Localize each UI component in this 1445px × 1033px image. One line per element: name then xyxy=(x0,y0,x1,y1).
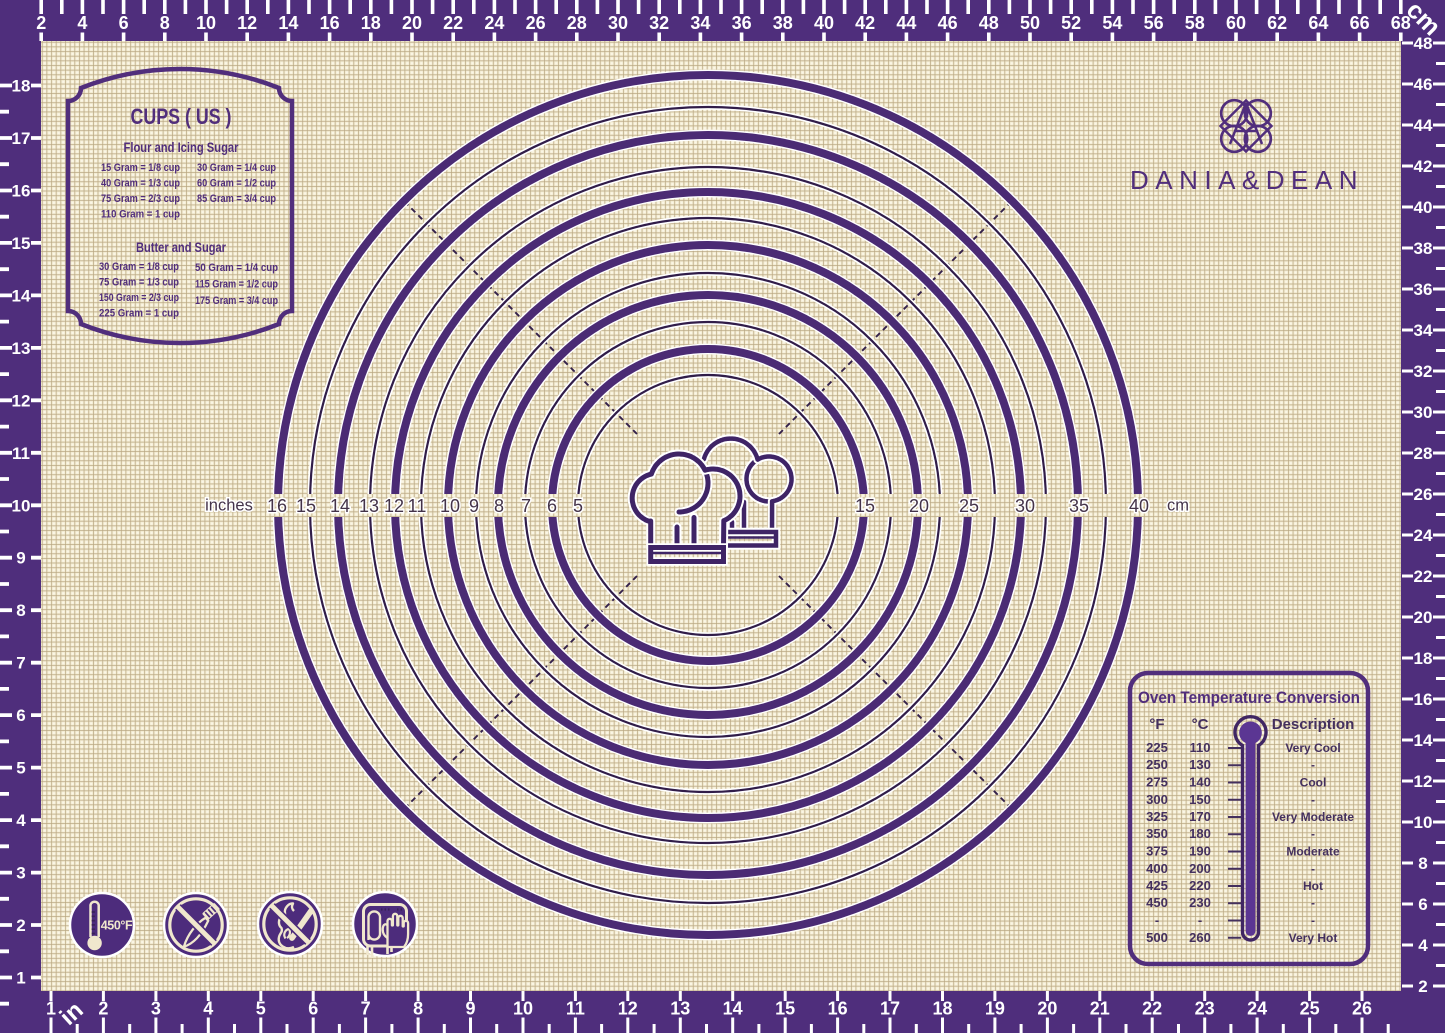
svg-text:12: 12 xyxy=(618,999,638,1019)
svg-text:13: 13 xyxy=(670,999,690,1019)
svg-text:12: 12 xyxy=(1414,772,1433,791)
svg-text:26: 26 xyxy=(1352,999,1372,1019)
svg-text:CUPS ( US ): CUPS ( US ) xyxy=(131,104,232,129)
svg-text:Hot: Hot xyxy=(1303,879,1323,893)
svg-text:64: 64 xyxy=(1308,13,1328,33)
svg-text:14: 14 xyxy=(12,286,31,305)
svg-text:4: 4 xyxy=(203,999,213,1019)
svg-text:8: 8 xyxy=(160,13,170,33)
svg-text:46: 46 xyxy=(938,13,958,33)
svg-text:15: 15 xyxy=(296,496,316,516)
svg-text:42: 42 xyxy=(855,13,875,33)
svg-text:110: 110 xyxy=(1190,740,1211,755)
svg-text:14: 14 xyxy=(330,496,350,516)
svg-text:200: 200 xyxy=(1189,861,1211,876)
svg-text:25: 25 xyxy=(959,496,979,516)
svg-text:2: 2 xyxy=(36,13,46,33)
svg-text:-: - xyxy=(1311,827,1315,841)
svg-text:260: 260 xyxy=(1189,930,1211,945)
svg-text:28: 28 xyxy=(567,13,587,33)
svg-text:275: 275 xyxy=(1146,775,1168,790)
svg-text:16: 16 xyxy=(12,182,31,201)
svg-text:20: 20 xyxy=(909,496,929,516)
svg-text:10: 10 xyxy=(12,496,31,515)
svg-text:8: 8 xyxy=(1418,854,1427,873)
svg-text:cm: cm xyxy=(1167,497,1189,515)
svg-text:Very Hot: Very Hot xyxy=(1289,931,1338,945)
svg-text:10: 10 xyxy=(440,496,460,516)
svg-text:66: 66 xyxy=(1350,13,1370,33)
svg-text:5: 5 xyxy=(573,496,583,516)
svg-text:16: 16 xyxy=(320,13,340,33)
svg-text:10: 10 xyxy=(1414,813,1433,832)
svg-text:18: 18 xyxy=(932,999,952,1019)
svg-text:14: 14 xyxy=(1414,731,1433,750)
svg-text:9: 9 xyxy=(465,999,475,1019)
svg-text:170: 170 xyxy=(1189,809,1211,824)
svg-text:50: 50 xyxy=(1020,13,1040,33)
svg-text:Moderate: Moderate xyxy=(1286,845,1340,859)
svg-text:13: 13 xyxy=(12,339,31,358)
svg-text:130: 130 xyxy=(1189,757,1211,772)
svg-text:22: 22 xyxy=(1414,567,1433,586)
svg-text:375: 375 xyxy=(1146,844,1168,859)
svg-text:40 Gram = 1/3 cup: 40 Gram = 1/3 cup xyxy=(101,178,180,190)
svg-text:DANIA&DEAN: DANIA&DEAN xyxy=(1130,165,1364,195)
svg-text:325: 325 xyxy=(1146,809,1168,824)
svg-text:Very Moderate: Very Moderate xyxy=(1272,810,1354,824)
svg-text:175 Gram = 3/4 cup: 175 Gram = 3/4 cup xyxy=(195,295,278,307)
svg-text:14: 14 xyxy=(278,13,298,33)
svg-text:2: 2 xyxy=(1418,977,1427,996)
svg-text:7: 7 xyxy=(521,496,531,516)
svg-text:40: 40 xyxy=(1414,198,1433,217)
svg-text:10: 10 xyxy=(513,999,533,1019)
svg-text:inches: inches xyxy=(205,497,253,515)
svg-text:6: 6 xyxy=(16,706,25,725)
svg-text:16: 16 xyxy=(1414,690,1433,709)
svg-text:15: 15 xyxy=(775,999,795,1019)
svg-text:1: 1 xyxy=(16,969,25,988)
svg-text:13: 13 xyxy=(359,496,379,516)
svg-text:20: 20 xyxy=(1037,999,1057,1019)
svg-text:250: 250 xyxy=(1146,757,1168,772)
svg-text:10: 10 xyxy=(196,13,216,33)
svg-text:12: 12 xyxy=(384,496,404,516)
svg-text:15: 15 xyxy=(12,234,31,253)
svg-text:425: 425 xyxy=(1146,878,1168,893)
svg-text:58: 58 xyxy=(1185,13,1205,33)
svg-text:42: 42 xyxy=(1414,157,1433,176)
svg-text:22: 22 xyxy=(443,13,463,33)
svg-text:5: 5 xyxy=(256,999,266,1019)
svg-text:5: 5 xyxy=(16,759,25,778)
svg-text:11: 11 xyxy=(12,444,30,463)
svg-text:450°F: 450°F xyxy=(101,919,133,933)
svg-text:12: 12 xyxy=(237,13,257,33)
svg-text:18: 18 xyxy=(12,77,31,96)
svg-text:34: 34 xyxy=(1414,321,1433,340)
svg-text:Flour and Icing Sugar: Flour and Icing Sugar xyxy=(124,140,240,155)
svg-text:4: 4 xyxy=(77,13,87,33)
svg-text:11: 11 xyxy=(566,999,585,1019)
svg-text:30: 30 xyxy=(608,13,628,33)
svg-text:44: 44 xyxy=(896,13,916,33)
svg-text:17: 17 xyxy=(880,999,900,1019)
svg-text:85 Gram = 3/4 cup: 85 Gram = 3/4 cup xyxy=(197,193,276,205)
svg-text:450: 450 xyxy=(1146,895,1168,910)
svg-text:-: - xyxy=(1311,793,1315,807)
svg-text:500: 500 xyxy=(1146,930,1168,945)
svg-text:12: 12 xyxy=(12,391,31,410)
svg-text:-: - xyxy=(1155,913,1159,928)
svg-text:18: 18 xyxy=(1414,649,1433,668)
svg-text:2: 2 xyxy=(16,916,25,935)
svg-text:3: 3 xyxy=(16,864,25,883)
svg-text:4: 4 xyxy=(16,811,26,830)
svg-text:25: 25 xyxy=(1300,999,1320,1019)
svg-text:36: 36 xyxy=(732,13,752,33)
svg-text:16: 16 xyxy=(267,496,287,516)
svg-text:54: 54 xyxy=(1102,13,1122,33)
svg-text:30 Gram = 1/8 cup: 30 Gram = 1/8 cup xyxy=(99,261,179,273)
svg-text:Very Cool: Very Cool xyxy=(1285,741,1340,755)
svg-text:14: 14 xyxy=(723,999,743,1019)
svg-text:7: 7 xyxy=(361,999,371,1019)
svg-text:60: 60 xyxy=(1226,13,1246,33)
svg-text:24: 24 xyxy=(1414,526,1433,545)
svg-text:6: 6 xyxy=(1418,895,1427,914)
svg-text:22: 22 xyxy=(1142,999,1162,1019)
svg-text:150 Gram = 2/3 cup: 150 Gram = 2/3 cup xyxy=(99,292,179,304)
svg-text:18: 18 xyxy=(361,13,381,33)
svg-text:°F: °F xyxy=(1149,716,1164,733)
svg-text:24: 24 xyxy=(1247,999,1267,1019)
svg-text:48: 48 xyxy=(979,13,999,33)
svg-text:6: 6 xyxy=(119,13,129,33)
svg-text:-: - xyxy=(1198,913,1202,928)
svg-text:32: 32 xyxy=(649,13,669,33)
svg-text:17: 17 xyxy=(12,129,31,148)
svg-text:-: - xyxy=(1311,914,1315,928)
svg-text:Oven Temperature Conversion: Oven Temperature Conversion xyxy=(1138,688,1360,707)
svg-text:50 Gram = 1/4 cup: 50 Gram = 1/4 cup xyxy=(195,262,278,274)
svg-text:-: - xyxy=(1311,896,1315,910)
svg-text:36: 36 xyxy=(1414,280,1433,299)
svg-text:Butter and Sugar: Butter and Sugar xyxy=(136,240,227,255)
svg-text:2: 2 xyxy=(98,999,108,1019)
svg-text:46: 46 xyxy=(1414,75,1433,94)
svg-text:15 Gram = 1/8 cup: 15 Gram = 1/8 cup xyxy=(101,162,180,174)
svg-text:56: 56 xyxy=(1144,13,1164,33)
svg-text:60 Gram = 1/2 cup: 60 Gram = 1/2 cup xyxy=(197,178,276,190)
svg-text:38: 38 xyxy=(1414,239,1433,258)
svg-text:38: 38 xyxy=(773,13,793,33)
svg-text:44: 44 xyxy=(1414,116,1433,135)
svg-text:28: 28 xyxy=(1414,444,1433,463)
svg-text:225 Gram = 1 cup: 225 Gram = 1 cup xyxy=(99,308,179,320)
svg-text:23: 23 xyxy=(1195,999,1215,1019)
svg-text:35: 35 xyxy=(1069,496,1089,516)
svg-text:225: 225 xyxy=(1146,740,1168,755)
svg-text:20: 20 xyxy=(402,13,422,33)
svg-text:16: 16 xyxy=(828,999,848,1019)
svg-text:20: 20 xyxy=(1414,608,1433,627)
svg-text:8: 8 xyxy=(494,496,504,516)
svg-text:400: 400 xyxy=(1146,861,1168,876)
svg-text:-: - xyxy=(1311,862,1315,876)
svg-text:75 Gram = 1/3 cup: 75 Gram = 1/3 cup xyxy=(99,277,179,289)
svg-text:1: 1 xyxy=(46,999,56,1019)
svg-text:°C: °C xyxy=(1192,716,1209,733)
svg-text:6: 6 xyxy=(308,999,318,1019)
svg-text:3: 3 xyxy=(151,999,161,1019)
svg-text:140: 140 xyxy=(1189,775,1211,790)
svg-text:26: 26 xyxy=(1414,485,1433,504)
svg-text:190: 190 xyxy=(1189,844,1211,859)
svg-text:-: - xyxy=(1311,758,1315,772)
svg-text:15: 15 xyxy=(855,496,875,516)
svg-text:Description: Description xyxy=(1272,716,1355,733)
svg-text:75 Gram = 2/3 cup: 75 Gram = 2/3 cup xyxy=(101,193,180,205)
svg-text:9: 9 xyxy=(469,496,479,516)
svg-text:115 Gram = 1/2 cup: 115 Gram = 1/2 cup xyxy=(195,279,278,291)
svg-text:110 Gram = 1 cup: 110 Gram = 1 cup xyxy=(101,209,180,221)
svg-text:26: 26 xyxy=(526,13,546,33)
svg-text:350: 350 xyxy=(1146,826,1168,841)
svg-text:6: 6 xyxy=(547,496,557,516)
svg-text:180: 180 xyxy=(1189,826,1211,841)
svg-text:21: 21 xyxy=(1090,999,1110,1019)
svg-text:8: 8 xyxy=(413,999,423,1019)
svg-text:30: 30 xyxy=(1414,403,1433,422)
svg-text:4: 4 xyxy=(1418,936,1428,955)
svg-text:52: 52 xyxy=(1061,13,1081,33)
svg-text:150: 150 xyxy=(1189,792,1211,807)
svg-text:7: 7 xyxy=(16,654,25,673)
svg-text:32: 32 xyxy=(1414,362,1433,381)
svg-text:62: 62 xyxy=(1267,13,1287,33)
svg-text:300: 300 xyxy=(1146,792,1168,807)
svg-text:40: 40 xyxy=(814,13,834,33)
svg-text:30: 30 xyxy=(1015,496,1035,516)
svg-text:9: 9 xyxy=(16,549,25,568)
svg-text:34: 34 xyxy=(690,13,710,33)
svg-text:30 Gram = 1/4 cup: 30 Gram = 1/4 cup xyxy=(197,162,276,174)
svg-text:40: 40 xyxy=(1129,496,1149,516)
svg-text:230: 230 xyxy=(1189,895,1211,910)
svg-text:220: 220 xyxy=(1189,878,1211,893)
svg-text:24: 24 xyxy=(484,13,504,33)
svg-text:11: 11 xyxy=(408,496,427,516)
svg-text:Cool: Cool xyxy=(1300,776,1327,790)
svg-text:19: 19 xyxy=(985,999,1005,1019)
svg-text:8: 8 xyxy=(16,601,25,620)
